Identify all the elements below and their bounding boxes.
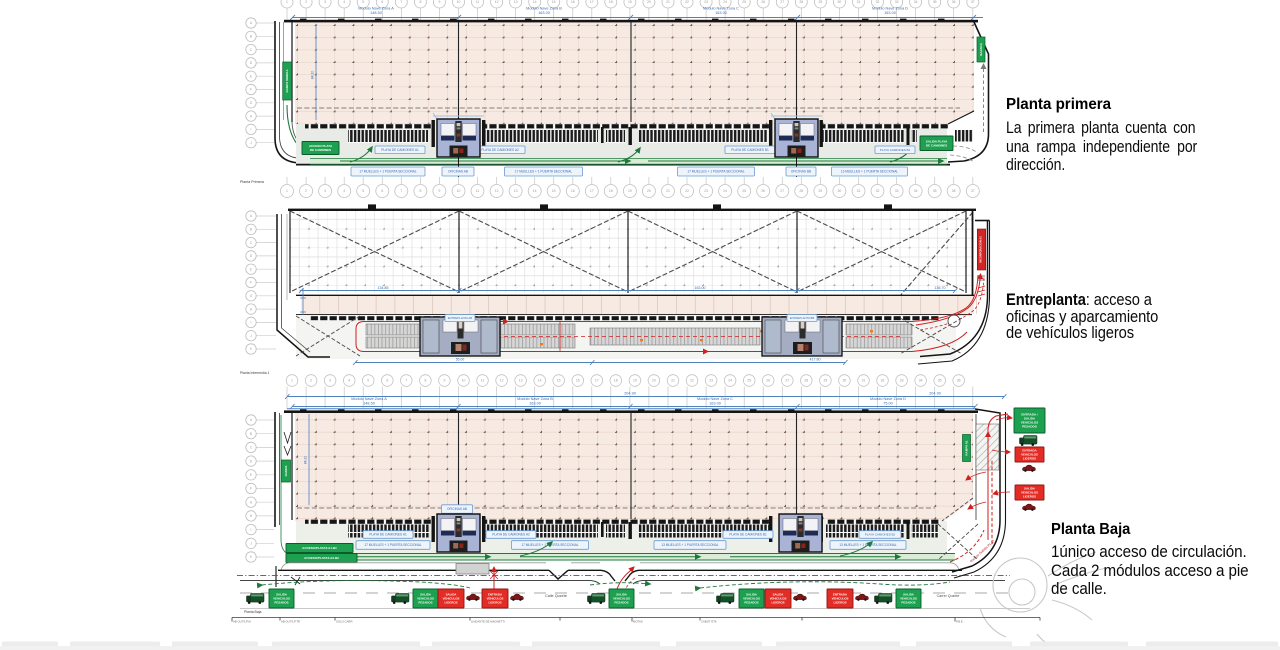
svg-text:30: 30: [843, 379, 847, 383]
svg-text:LIGEROS: LIGEROS: [1023, 457, 1036, 461]
svg-text:E: E: [250, 473, 252, 477]
svg-text:BAJADA: BAJADA: [979, 42, 983, 55]
svg-text:25: 25: [742, 0, 746, 4]
svg-text:134.85: 134.85: [378, 286, 389, 290]
svg-text:417.80: 417.80: [810, 358, 821, 362]
svg-text:22: 22: [685, 0, 689, 4]
svg-text:163.00: 163.00: [529, 402, 541, 406]
svg-text:Modulo Nave Zona C: Modulo Nave Zona C: [703, 7, 739, 11]
svg-text:136.70: 136.70: [935, 286, 946, 290]
svg-text:5: 5: [367, 379, 369, 383]
svg-text:75.00: 75.00: [883, 402, 893, 406]
svg-text:3: 3: [324, 0, 326, 4]
svg-text:13 MUELLES + 1 PUERTA SECCIONA: 13 MUELLES + 1 PUERTA SECCIONAL: [661, 543, 719, 547]
svg-text:LIGEROS: LIGEROS: [488, 601, 501, 605]
svg-text:RAMPA A1: RAMPA A1: [964, 440, 968, 456]
svg-text:PESADOS: PESADOS: [614, 601, 628, 605]
svg-text:I: I: [251, 528, 252, 532]
svg-text:3: 3: [329, 379, 331, 383]
svg-text:4: 4: [348, 379, 350, 383]
svg-text:5: 5: [362, 189, 364, 193]
svg-text:28: 28: [799, 0, 803, 4]
svg-text:17 MUELLES + 1 PUERTA SECCIONA: 17 MUELLES + 1 PUERTA SECCIONAL: [359, 170, 417, 174]
svg-text:17 MUELLES + 1 PUERTA SECCIONA: 17 MUELLES + 1 PUERTA SECCIONAL: [364, 543, 422, 547]
svg-text:29: 29: [824, 379, 828, 383]
svg-text:PLAYA CAMIONES B2: PLAYA CAMIONES B2: [880, 148, 911, 152]
svg-text:16: 16: [571, 0, 575, 4]
svg-text:22: 22: [685, 189, 689, 193]
svg-text:19: 19: [628, 189, 632, 193]
svg-text:I: I: [251, 128, 252, 132]
svg-text:11: 11: [476, 0, 480, 4]
svg-text:24: 24: [728, 379, 732, 383]
svg-text:204.90: 204.90: [929, 392, 941, 396]
svg-text:Modulo Nave Zona B: Modulo Nave Zona B: [517, 397, 553, 401]
svg-text:33: 33: [900, 379, 904, 383]
svg-text:B: B: [250, 228, 252, 232]
svg-text:15: 15: [552, 189, 556, 193]
svg-text:AB OUTS.P.TR: AB OUTS.P.TR: [281, 620, 300, 624]
svg-text:15: 15: [557, 379, 561, 383]
svg-text:1: 1: [291, 379, 293, 383]
svg-text:Modulo Nave Zona D: Modulo Nave Zona D: [872, 7, 908, 11]
svg-text:ACCESO/PLAYAS A2-B2: ACCESO/PLAYAS A2-B2: [304, 556, 339, 560]
svg-text:20: 20: [647, 189, 651, 193]
svg-text:1: 1: [286, 0, 288, 4]
svg-text:12: 12: [495, 189, 499, 193]
svg-text:16: 16: [571, 189, 575, 193]
svg-text:7: 7: [400, 189, 402, 193]
svg-text:34: 34: [919, 379, 923, 383]
svg-text:OFICINAS BB: OFICINAS BB: [791, 170, 811, 174]
svg-text:24: 24: [723, 0, 727, 4]
svg-text:3: 3: [324, 189, 326, 193]
svg-text:21: 21: [666, 189, 670, 193]
svg-text:148.50: 148.50: [363, 402, 375, 406]
svg-text:Planta Baja: Planta Baja: [244, 610, 261, 614]
svg-text:30: 30: [838, 0, 842, 4]
svg-text:PLAYA DE CAMIONES A1: PLAYA DE CAMIONES A1: [369, 533, 407, 537]
svg-text:21: 21: [671, 379, 675, 383]
svg-text:PLAYA CAMIONES B2: PLAYA CAMIONES B2: [865, 533, 896, 537]
svg-text:18: 18: [609, 0, 613, 4]
svg-text:F: F: [250, 281, 252, 285]
svg-text:Modulo Nave Zona D: Modulo Nave Zona D: [870, 397, 906, 401]
svg-text:163.00: 163.00: [538, 11, 550, 15]
svg-text:F: F: [250, 88, 252, 92]
svg-text:Modulo Nave Zona A: Modulo Nave Zona A: [351, 397, 387, 401]
svg-text:37: 37: [971, 189, 975, 193]
svg-text:33: 33: [895, 189, 899, 193]
svg-text:84.20: 84.20: [304, 456, 308, 465]
svg-text:11: 11: [476, 189, 480, 193]
svg-text:MOTAS: MOTAS: [633, 620, 643, 624]
svg-text:36: 36: [952, 0, 956, 4]
svg-text:31: 31: [857, 0, 861, 4]
svg-text:CABOT ETA: CABOT ETA: [701, 620, 717, 624]
svg-text:OFICINAS AB: OFICINAS AB: [447, 507, 467, 511]
svg-text:10: 10: [457, 189, 461, 193]
svg-text:17: 17: [595, 379, 599, 383]
svg-text:12: 12: [500, 379, 504, 383]
svg-text:8: 8: [419, 189, 421, 193]
svg-text:ACCESO/PLAYAS A1-B1: ACCESO/PLAYAS A1-B1: [302, 546, 337, 550]
svg-text:30: 30: [838, 189, 842, 193]
svg-text:10: 10: [462, 379, 466, 383]
svg-text:RAMPA SUBIDA: RAMPA SUBIDA: [285, 69, 289, 93]
svg-text:PLAYA DE CAMIONES B1: PLAYA DE CAMIONES B1: [731, 148, 769, 152]
svg-text:19: 19: [628, 0, 632, 4]
svg-text:INCORPORACION A1: INCORPORACION A1: [979, 236, 983, 263]
svg-text:36: 36: [952, 189, 956, 193]
svg-text:19: 19: [633, 379, 637, 383]
svg-text:Modulo Nave Zona B: Modulo Nave Zona B: [526, 7, 562, 11]
svg-text:17: 17: [590, 0, 594, 4]
svg-text:PESADOS: PESADOS: [418, 601, 432, 605]
svg-text:E: E: [250, 74, 252, 78]
svg-text:LIGEROS: LIGEROS: [771, 601, 784, 605]
svg-text:18: 18: [609, 189, 613, 193]
svg-text:28: 28: [804, 379, 808, 383]
svg-text:29: 29: [819, 189, 823, 193]
svg-text:B: B: [250, 35, 252, 39]
svg-text:26: 26: [761, 0, 765, 4]
svg-text:35: 35: [933, 0, 937, 4]
svg-text:PLAYA DE CAMIONES A2: PLAYA DE CAMIONES A2: [481, 148, 519, 152]
svg-text:33: 33: [895, 0, 899, 4]
svg-text:9: 9: [438, 0, 440, 4]
svg-text:7: 7: [405, 379, 407, 383]
svg-text:6: 6: [381, 0, 383, 4]
svg-text:23: 23: [709, 379, 713, 383]
svg-text:32: 32: [876, 0, 880, 4]
svg-text:B: B: [250, 432, 252, 436]
svg-text:12: 12: [495, 0, 499, 4]
svg-text:22: 22: [690, 379, 694, 383]
svg-text:25: 25: [747, 379, 751, 383]
svg-text:27: 27: [780, 0, 784, 4]
svg-text:163.00: 163.00: [884, 11, 896, 15]
svg-text:37: 37: [971, 0, 975, 4]
svg-text:27: 27: [785, 379, 789, 383]
svg-text:Planta Primera: Planta Primera: [240, 180, 264, 184]
svg-text:20: 20: [647, 0, 651, 4]
svg-text:P.B.E.: P.B.E.: [956, 620, 964, 624]
svg-text:15: 15: [552, 0, 556, 4]
svg-text:PESADOS: PESADOS: [274, 601, 288, 605]
svg-text:27: 27: [780, 189, 784, 193]
svg-text:163.00: 163.00: [709, 402, 721, 406]
svg-text:7: 7: [400, 0, 402, 4]
svg-text:PESADOS: PESADOS: [901, 601, 915, 605]
svg-text:163.00: 163.00: [715, 11, 727, 15]
svg-text:148.50: 148.50: [370, 11, 382, 15]
svg-text:34: 34: [914, 0, 918, 4]
svg-text:LIGEROS: LIGEROS: [833, 601, 846, 605]
svg-text:36: 36: [957, 379, 961, 383]
svg-text:DE CAMIONES: DE CAMIONES: [926, 143, 947, 147]
svg-text:Modulo Nave Zona C: Modulo Nave Zona C: [697, 397, 733, 401]
svg-text:16: 16: [576, 379, 580, 383]
svg-text:RAMPA: RAMPA: [284, 465, 288, 477]
svg-text:PLAYA DE CAMIONES A2: PLAYA DE CAMIONES A2: [492, 533, 530, 537]
svg-text:23: 23: [704, 189, 708, 193]
svg-text:LIGEROS: LIGEROS: [444, 601, 457, 605]
svg-text:DE CAMIONES: DE CAMIONES: [310, 148, 331, 152]
svg-text:23: 23: [704, 0, 708, 4]
svg-text:PESADOS: PESADOS: [1022, 425, 1037, 429]
svg-text:31: 31: [857, 189, 861, 193]
svg-text:17: 17: [590, 189, 594, 193]
svg-text:6: 6: [386, 379, 388, 383]
svg-text:13 MUELLES + 1 PUERTA SECCIONA: 13 MUELLES + 1 PUERTA SECCIONAL: [841, 170, 899, 174]
svg-text:35: 35: [938, 379, 942, 383]
svg-text:9: 9: [438, 189, 440, 193]
svg-text:163.00: 163.00: [695, 286, 706, 290]
svg-text:ENTREPLANTA AB: ENTREPLANTA AB: [448, 316, 472, 320]
svg-text:F: F: [250, 487, 252, 491]
svg-text:14: 14: [533, 0, 537, 4]
svg-text:6: 6: [381, 189, 383, 193]
svg-text:18: 18: [614, 379, 618, 383]
svg-text:25: 25: [742, 189, 746, 193]
svg-text:35: 35: [933, 189, 937, 193]
svg-text:13: 13: [519, 379, 523, 383]
svg-text:84.20: 84.20: [311, 71, 315, 80]
svg-text:204.90: 204.90: [624, 392, 636, 396]
svg-text:Carrer Quzete: Carrer Quzete: [937, 594, 960, 598]
svg-text:21: 21: [666, 0, 670, 4]
svg-text:31: 31: [862, 379, 866, 383]
svg-text:PLAYA DE CAMIONES B1: PLAYA DE CAMIONES B1: [729, 533, 767, 537]
svg-text:LINDANTE DE MAGNETTI: LINDANTE DE MAGNETTI: [471, 620, 505, 624]
svg-text:26: 26: [761, 189, 765, 193]
svg-text:2: 2: [305, 189, 307, 193]
svg-text:4: 4: [343, 0, 345, 4]
svg-text:1: 1: [286, 189, 288, 193]
svg-text:ENTREPLANTA BB: ENTREPLANTA BB: [790, 316, 815, 320]
svg-text:32: 32: [881, 379, 885, 383]
svg-text:2: 2: [305, 0, 307, 4]
svg-text:I: I: [251, 321, 252, 325]
svg-text:OFICINAS AB: OFICINAS AB: [448, 170, 468, 174]
svg-text:17 MUELLES + 1 PUERTA SECCIONA: 17 MUELLES + 1 PUERTA SECCIONAL: [687, 170, 745, 174]
svg-text:PESADOS: PESADOS: [744, 601, 758, 605]
svg-text:10: 10: [457, 0, 461, 4]
svg-text:11: 11: [481, 379, 485, 383]
svg-text:Calle Quzete: Calle Quzete: [545, 594, 567, 598]
svg-text:17 MUELLES + 1 PUERTA SECCIONA: 17 MUELLES + 1 PUERTA SECCIONAL: [515, 170, 573, 174]
svg-text:26: 26: [766, 379, 770, 383]
svg-text:8: 8: [424, 379, 426, 383]
svg-text:2: 2: [310, 379, 312, 383]
svg-text:5: 5: [362, 0, 364, 4]
svg-text:29: 29: [819, 0, 823, 4]
svg-text:34: 34: [914, 189, 918, 193]
svg-text:PLAYA DE CAMIONES A1: PLAYA DE CAMIONES A1: [381, 148, 419, 152]
svg-text:20: 20: [652, 379, 656, 383]
svg-text:SOLO CARR: SOLO CARR: [336, 620, 352, 624]
svg-text:9: 9: [443, 379, 445, 383]
svg-text:13: 13: [514, 0, 518, 4]
svg-text:AB OUTS.P.M: AB OUTS.P.M: [233, 620, 251, 624]
svg-text:8: 8: [419, 0, 421, 4]
svg-text:Planta Intermedia 1: Planta Intermedia 1: [240, 371, 270, 375]
svg-text:14: 14: [533, 189, 537, 193]
svg-text:E: E: [250, 267, 252, 271]
svg-text:28: 28: [799, 189, 803, 193]
svg-text:14: 14: [538, 379, 542, 383]
svg-text:32: 32: [876, 189, 880, 193]
svg-text:Modulo Nave Zona A: Modulo Nave Zona A: [358, 7, 394, 11]
svg-text:13: 13: [514, 189, 518, 193]
svg-text:24: 24: [723, 189, 727, 193]
svg-text:4: 4: [343, 189, 345, 193]
svg-text:LIGEROS: LIGEROS: [1023, 495, 1036, 499]
svg-text:55.00: 55.00: [456, 358, 465, 362]
